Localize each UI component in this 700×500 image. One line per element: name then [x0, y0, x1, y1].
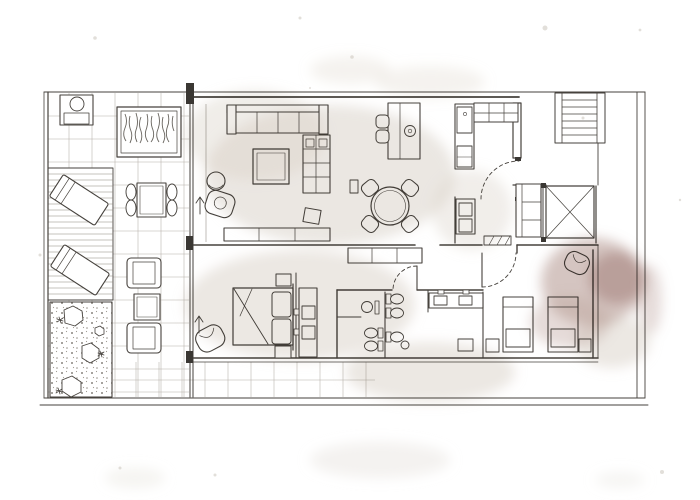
bbq-unit — [60, 95, 93, 125]
single-bed — [503, 297, 533, 352]
double-washbasin-counter — [429, 290, 483, 308]
elevator — [541, 183, 594, 242]
outdoor-armchair — [127, 323, 161, 353]
pillow — [506, 329, 530, 347]
outdoor-armchair — [127, 258, 161, 288]
entry-closet — [516, 184, 541, 237]
planter-bed — [117, 107, 181, 157]
side-table — [486, 339, 499, 352]
tall-unit-fridge — [455, 104, 474, 169]
rock — [95, 326, 104, 336]
wall-cabinets — [474, 103, 518, 122]
outdoor-side-table — [134, 294, 160, 320]
pebble-garden — [50, 302, 112, 397]
vanity-area — [429, 290, 483, 308]
floor-plan-sketch — [0, 0, 700, 500]
